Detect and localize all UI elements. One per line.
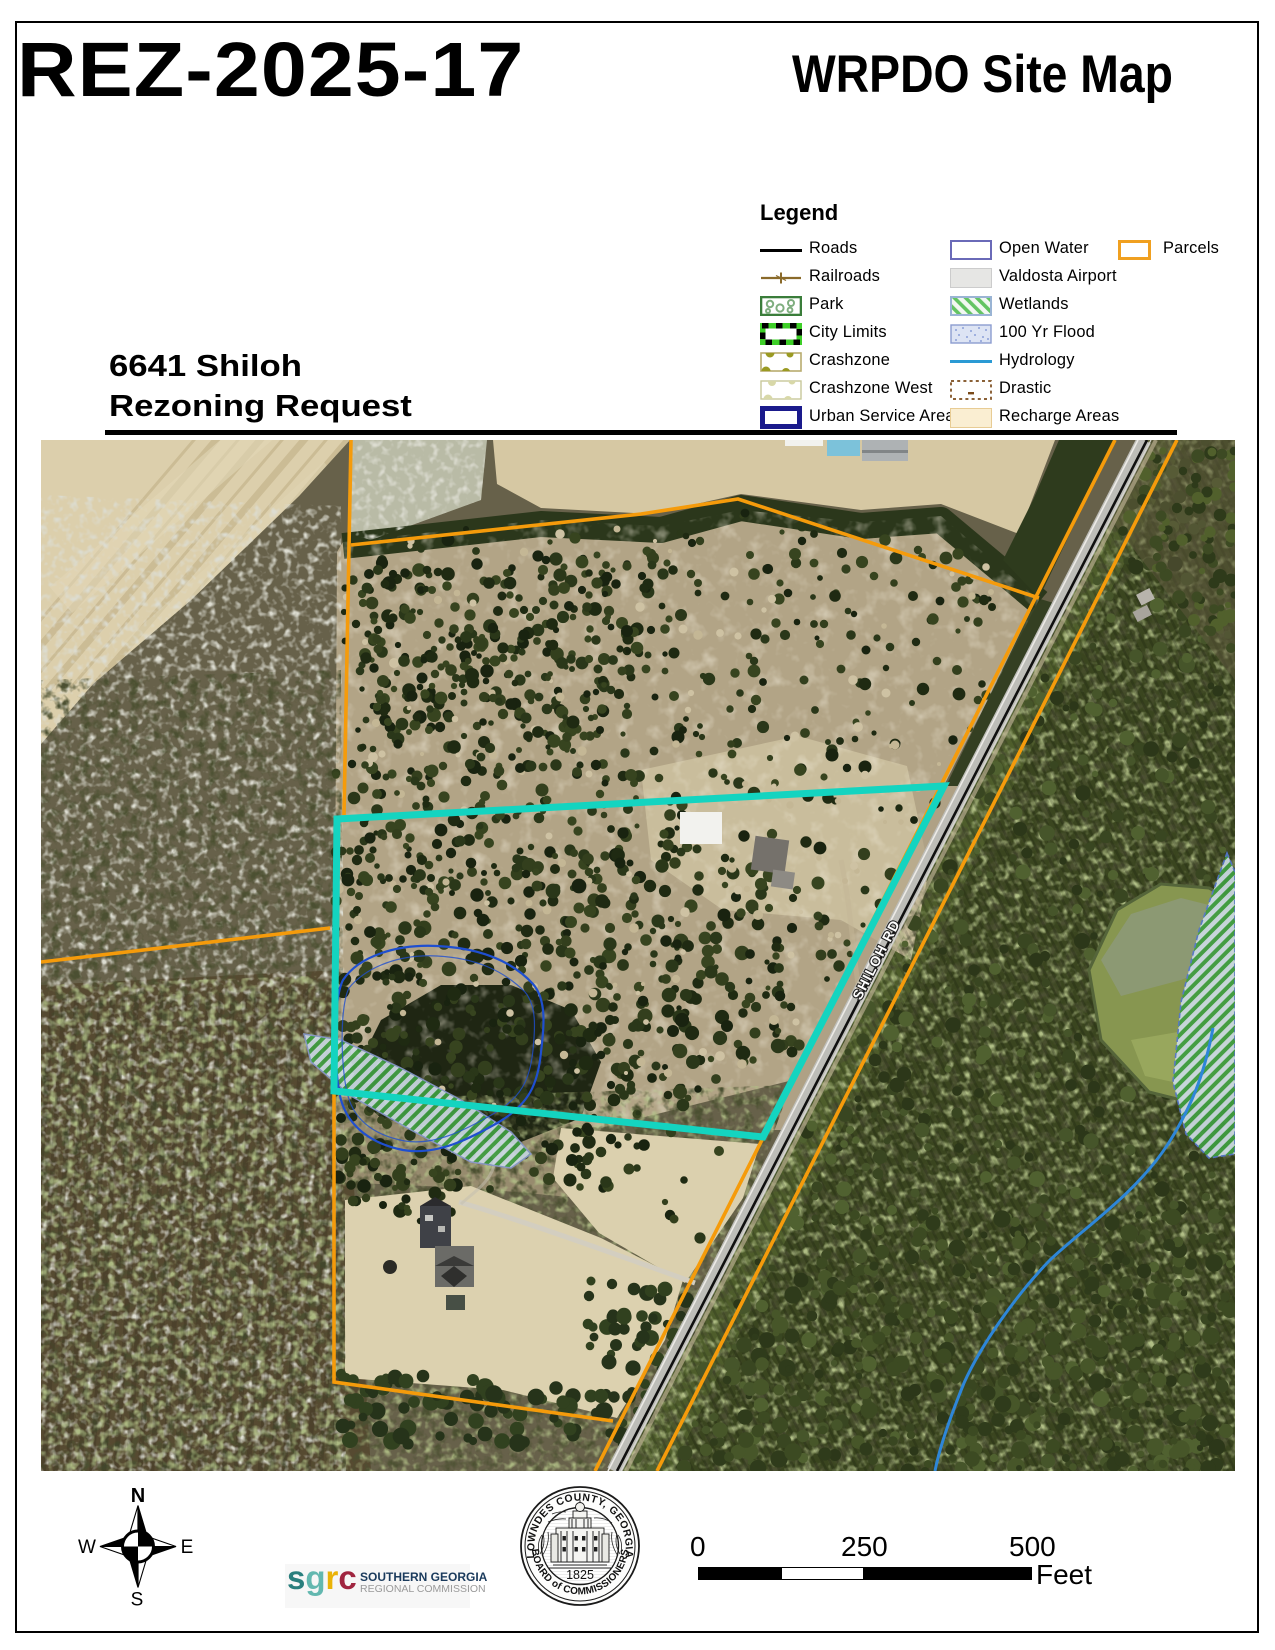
svg-text:E: E (181, 1537, 194, 1558)
svg-text:1825: 1825 (566, 1568, 594, 1582)
svg-text:W: W (78, 1537, 96, 1558)
svg-text:S: S (131, 1590, 144, 1611)
svg-text:N: N (131, 1485, 145, 1507)
